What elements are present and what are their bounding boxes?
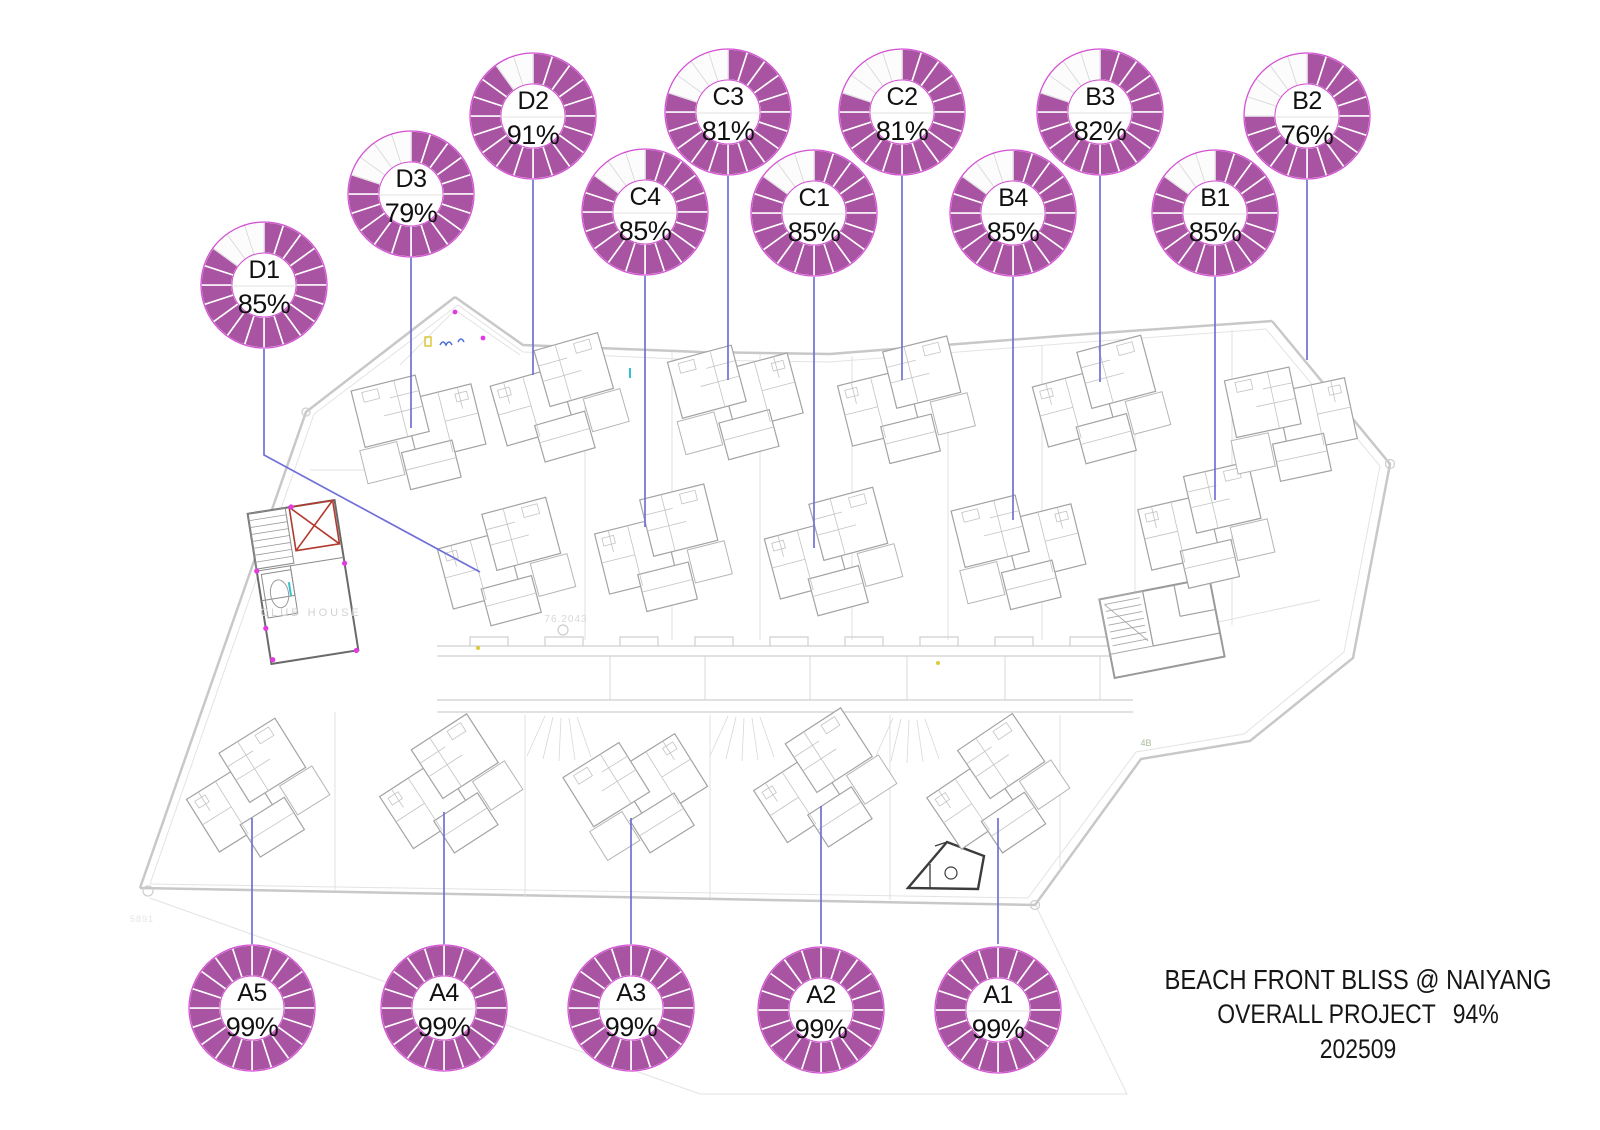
report-period: 202509 xyxy=(1146,1032,1571,1067)
donut-B2-pct: 76% xyxy=(1281,120,1334,150)
donut-C4: C485% xyxy=(582,149,708,275)
road xyxy=(437,637,1133,712)
villa-A5 xyxy=(175,715,338,874)
donut-A2-pct: 99% xyxy=(795,1014,848,1044)
villa-D3 xyxy=(345,363,492,500)
plan-label-0: CLUB HOUSE xyxy=(260,607,362,619)
donut-B3-pct: 82% xyxy=(1074,116,1127,146)
overall-progress-label: OVERALL PROJECT xyxy=(1217,999,1436,1029)
villa-D2 xyxy=(484,331,634,471)
overall-progress-value: 94% xyxy=(1453,999,1499,1029)
donut-B1-pct: 85% xyxy=(1189,217,1242,247)
donut-A5-pct: 99% xyxy=(226,1012,279,1042)
donut-B2-label: B2 xyxy=(1292,87,1322,115)
overall-progress: OVERALL PROJECT94% xyxy=(1146,997,1571,1032)
villa-B2 xyxy=(1219,356,1363,489)
donut-D2-label: D2 xyxy=(518,87,549,115)
donut-C2-pct: 81% xyxy=(876,116,929,146)
donut-B2: B276% xyxy=(1244,53,1370,179)
donut-C2: C281% xyxy=(839,49,965,175)
donut-B1: B185% xyxy=(1152,150,1278,276)
plan-label-2: 5891 xyxy=(130,914,154,924)
donut-A3-label: A3 xyxy=(616,979,646,1007)
villa-C2 xyxy=(832,335,979,472)
villa-A3 xyxy=(558,715,721,874)
donut-C3-label: C3 xyxy=(713,83,744,111)
donut-C3-pct: 81% xyxy=(702,116,755,146)
clubhouse xyxy=(245,497,362,667)
site-plan-canvas: D185%D379%D291%C485%C381%C185%C281%B485%… xyxy=(0,0,1600,1130)
villa-C1 xyxy=(759,486,907,624)
donut-A5-label: A5 xyxy=(237,979,267,1007)
donut-C2-label: C2 xyxy=(887,83,918,111)
progress-site-plan: D185%D379%D291%C485%C381%C185%C281%B485%… xyxy=(0,0,1600,1130)
donut-C3: C381% xyxy=(665,49,791,175)
villa-B4 xyxy=(945,483,1092,620)
donut-A1-pct: 99% xyxy=(972,1014,1025,1044)
donut-D3: D379% xyxy=(348,131,474,257)
donut-D3-label: D3 xyxy=(396,165,427,193)
donut-A3: A399% xyxy=(568,945,694,1071)
donut-D2: D291% xyxy=(470,53,596,179)
donut-A1-label: A1 xyxy=(983,981,1013,1009)
villa-A4 xyxy=(368,711,532,871)
donut-D1-label: D1 xyxy=(249,256,280,284)
donut-A4: A499% xyxy=(381,945,507,1071)
donut-D2-pct: 91% xyxy=(507,120,560,150)
donut-D3-pct: 79% xyxy=(385,198,438,228)
donut-A2: A299% xyxy=(758,947,884,1073)
donut-D1-pct: 85% xyxy=(238,289,291,319)
donut-A4-label: A4 xyxy=(429,979,459,1007)
donut-A1: A199% xyxy=(935,947,1061,1073)
donut-A2-label: A2 xyxy=(806,981,836,1009)
villa-A2 xyxy=(742,705,906,865)
pool-unit xyxy=(908,842,984,889)
donut-A3-pct: 99% xyxy=(605,1012,658,1042)
donut-B1-label: B1 xyxy=(1200,184,1230,212)
donut-B4-pct: 85% xyxy=(987,217,1040,247)
donut-C4-pct: 85% xyxy=(619,216,672,246)
donut-C1-label: C1 xyxy=(799,184,830,212)
donut-A5: A599% xyxy=(189,945,315,1071)
donut-A4-pct: 99% xyxy=(418,1012,471,1042)
donut-B3: B382% xyxy=(1037,49,1163,175)
villa-C4 xyxy=(589,483,736,620)
donut-C1: C185% xyxy=(751,150,877,276)
title-block: BEACH FRONT BLISS @ NAIYANG OVERALL PROJ… xyxy=(1146,962,1571,1067)
donut-C4-label: C4 xyxy=(630,183,662,211)
donut-C1-pct: 85% xyxy=(788,217,841,247)
donut-D1: D185% xyxy=(201,222,327,348)
donut-B4: B485% xyxy=(950,150,1076,276)
stair-building xyxy=(1099,578,1224,678)
donut-B4-label: B4 xyxy=(998,184,1028,212)
plan-label-1: 76.2043 xyxy=(544,614,587,625)
villa-B1 xyxy=(1133,460,1279,595)
villa-A1 xyxy=(915,710,1079,871)
project-title: BEACH FRONT BLISS @ NAIYANG xyxy=(1146,962,1571,997)
donut-B3-label: B3 xyxy=(1085,83,1115,111)
plan-label-3: 4B xyxy=(1140,738,1151,748)
